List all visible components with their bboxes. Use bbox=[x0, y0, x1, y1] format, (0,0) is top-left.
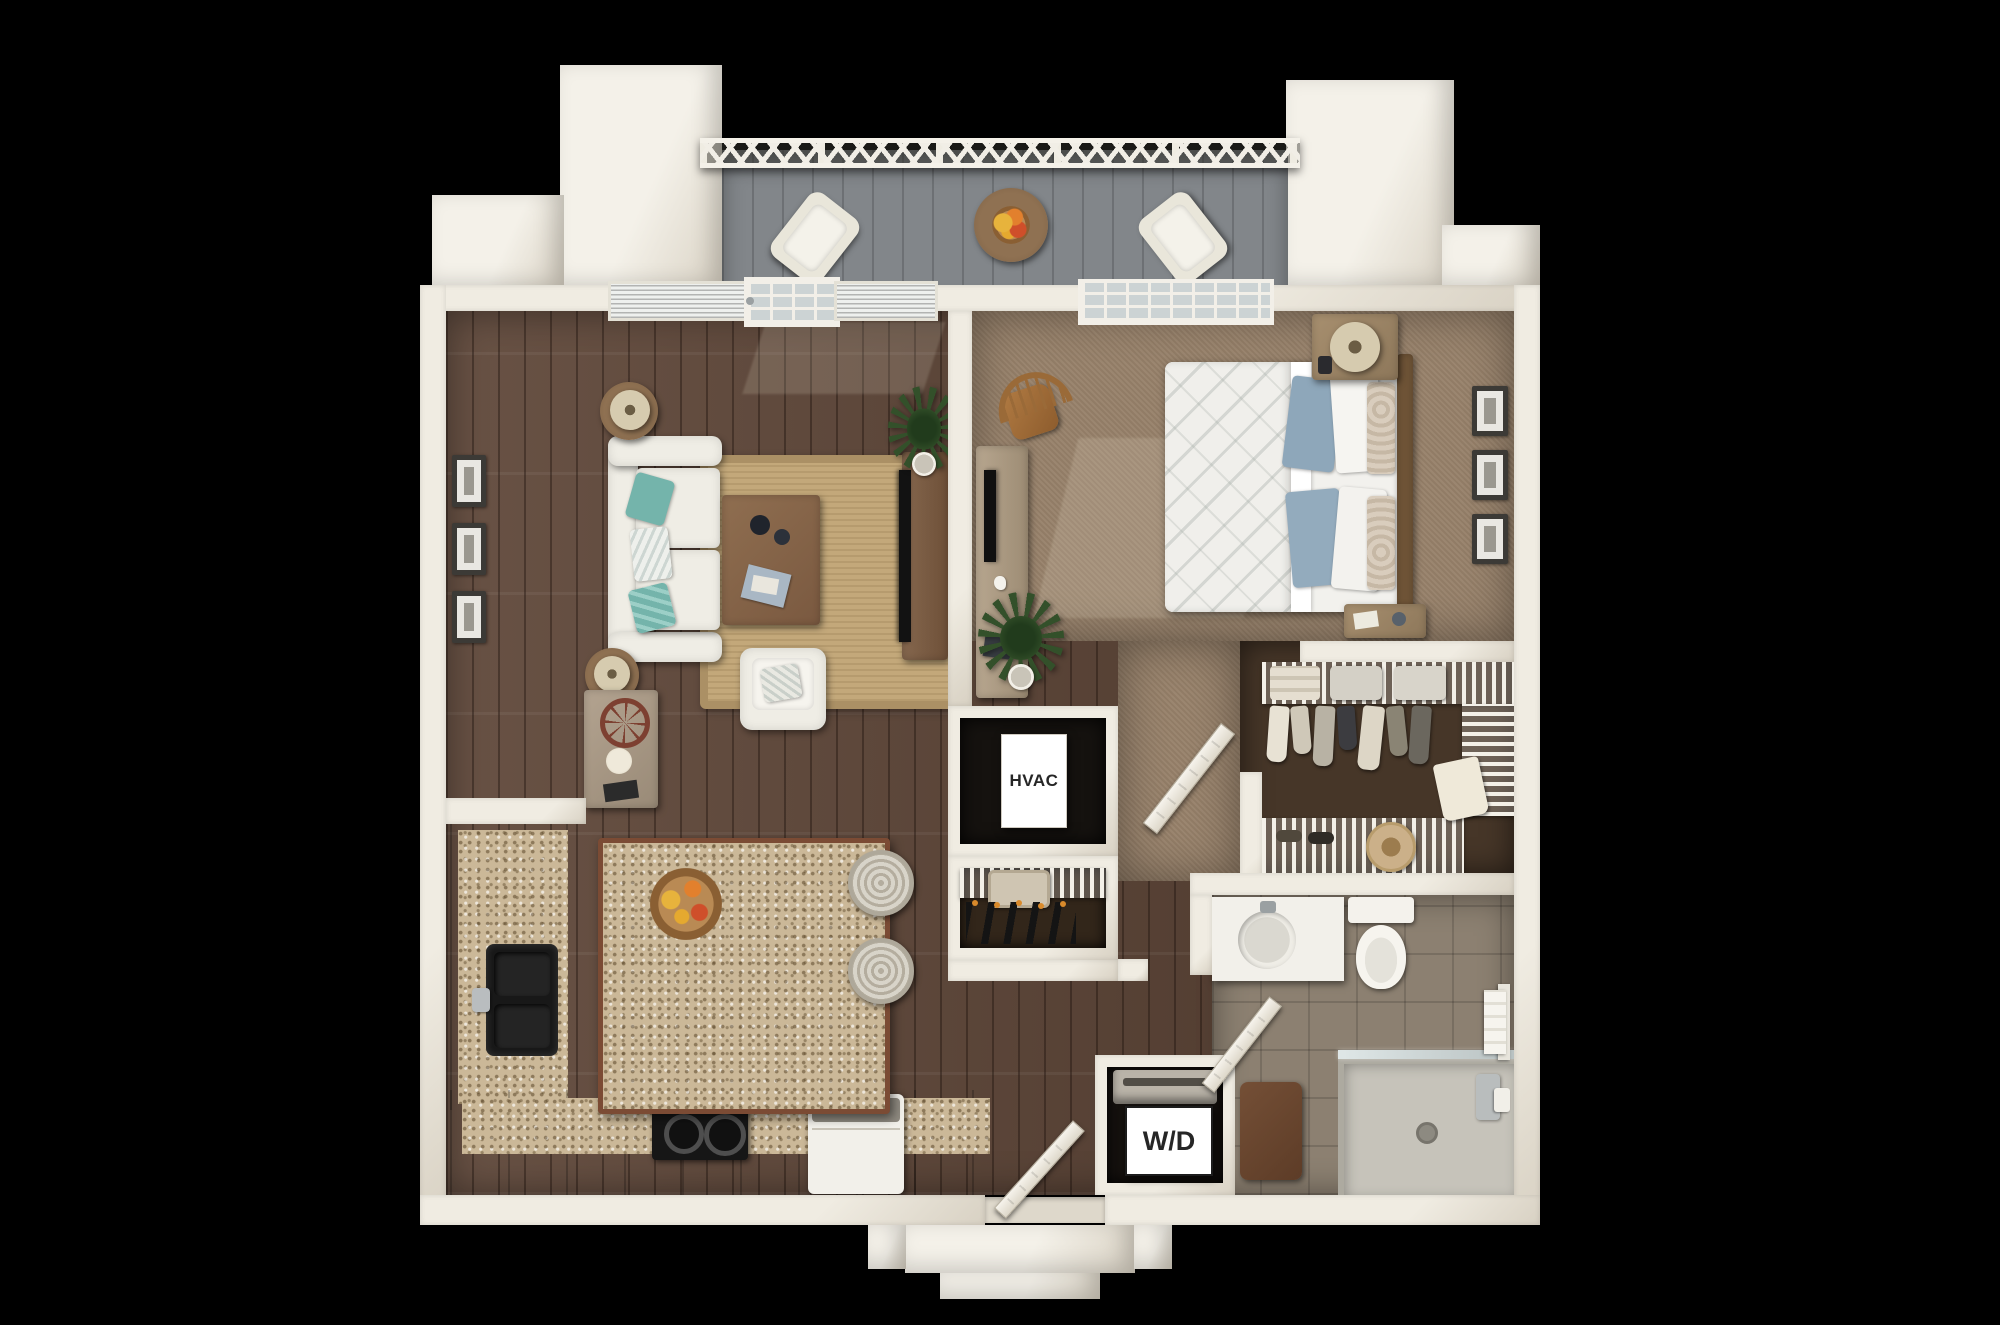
toilet bbox=[1348, 897, 1414, 993]
headboard bbox=[1397, 354, 1413, 620]
floor-plan-scene: HVAC W/D bbox=[0, 0, 2000, 1325]
balcony-pillar-left bbox=[560, 65, 722, 290]
toilet-paper-holder bbox=[1494, 1088, 1510, 1112]
storage-box bbox=[1330, 666, 1382, 700]
patterned-pillow bbox=[1367, 496, 1395, 590]
bathroom-vanity bbox=[1212, 897, 1344, 981]
washer-dryer-label-box: W/D bbox=[1125, 1106, 1213, 1176]
exterior-wall-top bbox=[420, 285, 1540, 311]
hat bbox=[1366, 822, 1416, 872]
coat-hangers bbox=[966, 902, 1076, 944]
bedroom-vestibule-carpet bbox=[1118, 641, 1240, 881]
wall-kitchen-jog bbox=[446, 798, 586, 824]
wagon-wheel-decor bbox=[600, 698, 650, 748]
refrigerator-door-seam bbox=[812, 1128, 900, 1130]
decor-vase bbox=[750, 515, 770, 535]
alarm-clock bbox=[1318, 356, 1332, 374]
coffee-table bbox=[722, 495, 820, 625]
entry-stoop bbox=[905, 1225, 1135, 1273]
table-lamp bbox=[594, 656, 630, 692]
wall-art bbox=[452, 591, 486, 643]
wall-art bbox=[1472, 450, 1508, 500]
balcony-french-door bbox=[744, 277, 840, 327]
vanity-sink bbox=[1238, 911, 1296, 969]
decor-vase bbox=[774, 529, 790, 545]
duvet-leaf-pattern bbox=[1165, 362, 1291, 612]
toilet-tank bbox=[1348, 897, 1414, 923]
closet-shelf-bottom bbox=[1262, 818, 1464, 873]
wall-closet-block-south bbox=[948, 960, 1118, 981]
patio-table bbox=[974, 188, 1048, 262]
exterior-wall-right bbox=[1442, 225, 1540, 290]
armchair bbox=[740, 648, 826, 730]
storage-box bbox=[1394, 666, 1446, 700]
wall-art bbox=[452, 455, 486, 507]
hanging-garment bbox=[1336, 705, 1357, 750]
stoop-pilaster-right bbox=[1134, 1225, 1172, 1269]
hanging-garment bbox=[1408, 705, 1432, 764]
decor-cup bbox=[1392, 612, 1406, 626]
floral-throw-pillow bbox=[629, 526, 672, 582]
wall-vestibule-stub bbox=[1118, 959, 1148, 981]
hanger-hooks bbox=[972, 900, 978, 906]
washer-dryer-unit-top bbox=[1113, 1070, 1217, 1104]
sofa-arm-top bbox=[608, 436, 722, 466]
kitchen-island bbox=[598, 838, 890, 1114]
decor-book bbox=[1353, 610, 1379, 629]
bathroom-faucet bbox=[1260, 901, 1276, 913]
table-lamp bbox=[610, 390, 650, 430]
wall-bedroom-south bbox=[1300, 641, 1514, 662]
hvac-label: HVAC bbox=[1010, 771, 1059, 791]
folded-clothes bbox=[1270, 666, 1320, 700]
bed bbox=[1165, 362, 1397, 612]
door-handle bbox=[746, 297, 754, 305]
washer-dryer-label: W/D bbox=[1143, 1126, 1195, 1157]
fruit-bowl bbox=[989, 203, 1033, 247]
hanging-towel bbox=[1484, 990, 1506, 1054]
exterior-wall-left bbox=[432, 195, 564, 290]
laundry-hamper bbox=[1240, 1082, 1302, 1180]
shower bbox=[1338, 1058, 1526, 1207]
decor-tray-dark bbox=[603, 780, 639, 803]
wall-living-bedroom-divider bbox=[948, 311, 972, 706]
planter-pot bbox=[912, 452, 936, 476]
accent-pillow bbox=[759, 663, 802, 703]
decor-knot bbox=[606, 748, 632, 774]
wall-bathroom-west-upper bbox=[1190, 895, 1212, 975]
sunlight-patch-living bbox=[742, 322, 945, 394]
wall-art bbox=[1472, 514, 1508, 564]
balcony-railing bbox=[700, 138, 1300, 168]
hanging-garment bbox=[1266, 705, 1290, 762]
buffet-console bbox=[584, 690, 658, 808]
sofa bbox=[608, 436, 722, 662]
faucet bbox=[472, 988, 490, 1012]
nightstand bbox=[1344, 604, 1426, 638]
burner bbox=[704, 1114, 746, 1156]
living-window-blinds bbox=[834, 281, 938, 321]
exterior-wall-bottom-left bbox=[420, 1195, 985, 1225]
stoop-pilaster-left bbox=[868, 1225, 906, 1269]
bar-stool bbox=[848, 938, 914, 1004]
exterior-wall-left bbox=[420, 285, 446, 1225]
patterned-pillow bbox=[1367, 382, 1395, 474]
shoes bbox=[1276, 830, 1302, 842]
sink-basin bbox=[494, 952, 550, 996]
shoes bbox=[1308, 832, 1334, 844]
exterior-wall-right bbox=[1514, 285, 1540, 1225]
balcony-pillar-right bbox=[1286, 80, 1454, 290]
tv bbox=[899, 470, 911, 642]
shower-drain bbox=[1416, 1122, 1438, 1144]
wall-art bbox=[452, 523, 486, 575]
bar-stool bbox=[848, 850, 914, 916]
wall-bathroom-north bbox=[1190, 873, 1514, 895]
bedside-lamp bbox=[1330, 322, 1380, 372]
wall-art bbox=[1472, 386, 1508, 436]
island-fruit-bowl bbox=[644, 862, 728, 946]
planter-pot bbox=[1008, 664, 1034, 690]
washer-slot bbox=[1123, 1078, 1207, 1086]
exterior-wall-bottom-right bbox=[1105, 1195, 1540, 1225]
toilet-bowl bbox=[1356, 925, 1406, 989]
desk-monitor bbox=[984, 470, 996, 562]
living-window-blinds bbox=[608, 281, 748, 321]
hvac-unit: HVAC bbox=[1001, 734, 1067, 828]
bedroom-window bbox=[1078, 279, 1274, 325]
kitchen-sink bbox=[486, 944, 558, 1056]
entry-stoop-step bbox=[940, 1273, 1100, 1299]
burner bbox=[664, 1114, 704, 1154]
hanging-garment bbox=[1312, 706, 1335, 767]
sink-basin bbox=[494, 1004, 550, 1048]
bird-figurine bbox=[994, 576, 1006, 590]
